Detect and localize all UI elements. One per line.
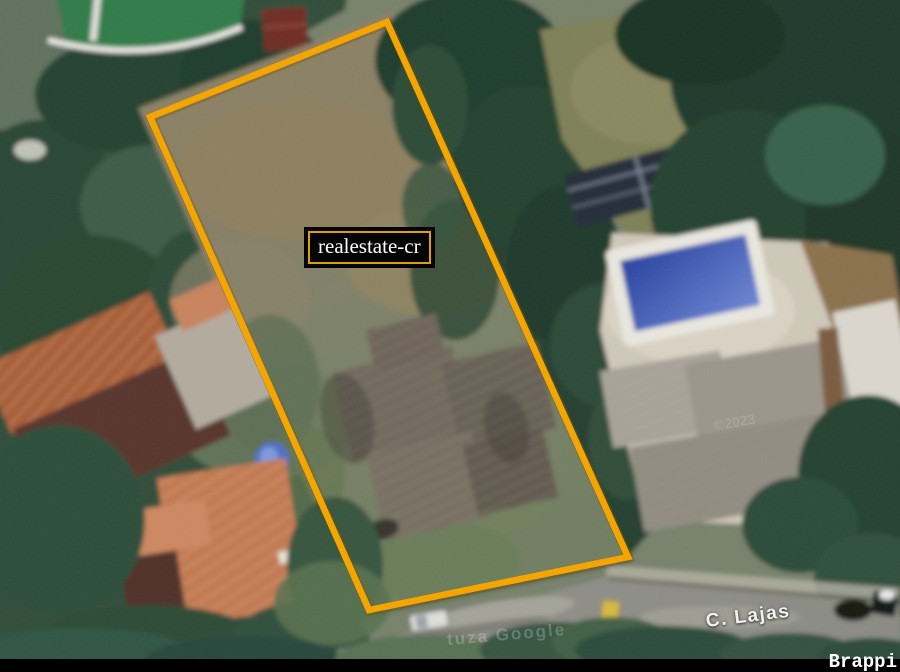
satellite-photo: realestate-cr C. Lajas tuza Google ©2023… [0, 0, 900, 672]
property-label-text: realestate-cr [308, 231, 431, 264]
brand-watermark: Brappi [829, 652, 897, 672]
property-label-box: realestate-cr [305, 228, 434, 267]
bottom-bar [0, 659, 900, 672]
satellite-scene [0, 0, 900, 672]
photo-grain [0, 0, 900, 672]
